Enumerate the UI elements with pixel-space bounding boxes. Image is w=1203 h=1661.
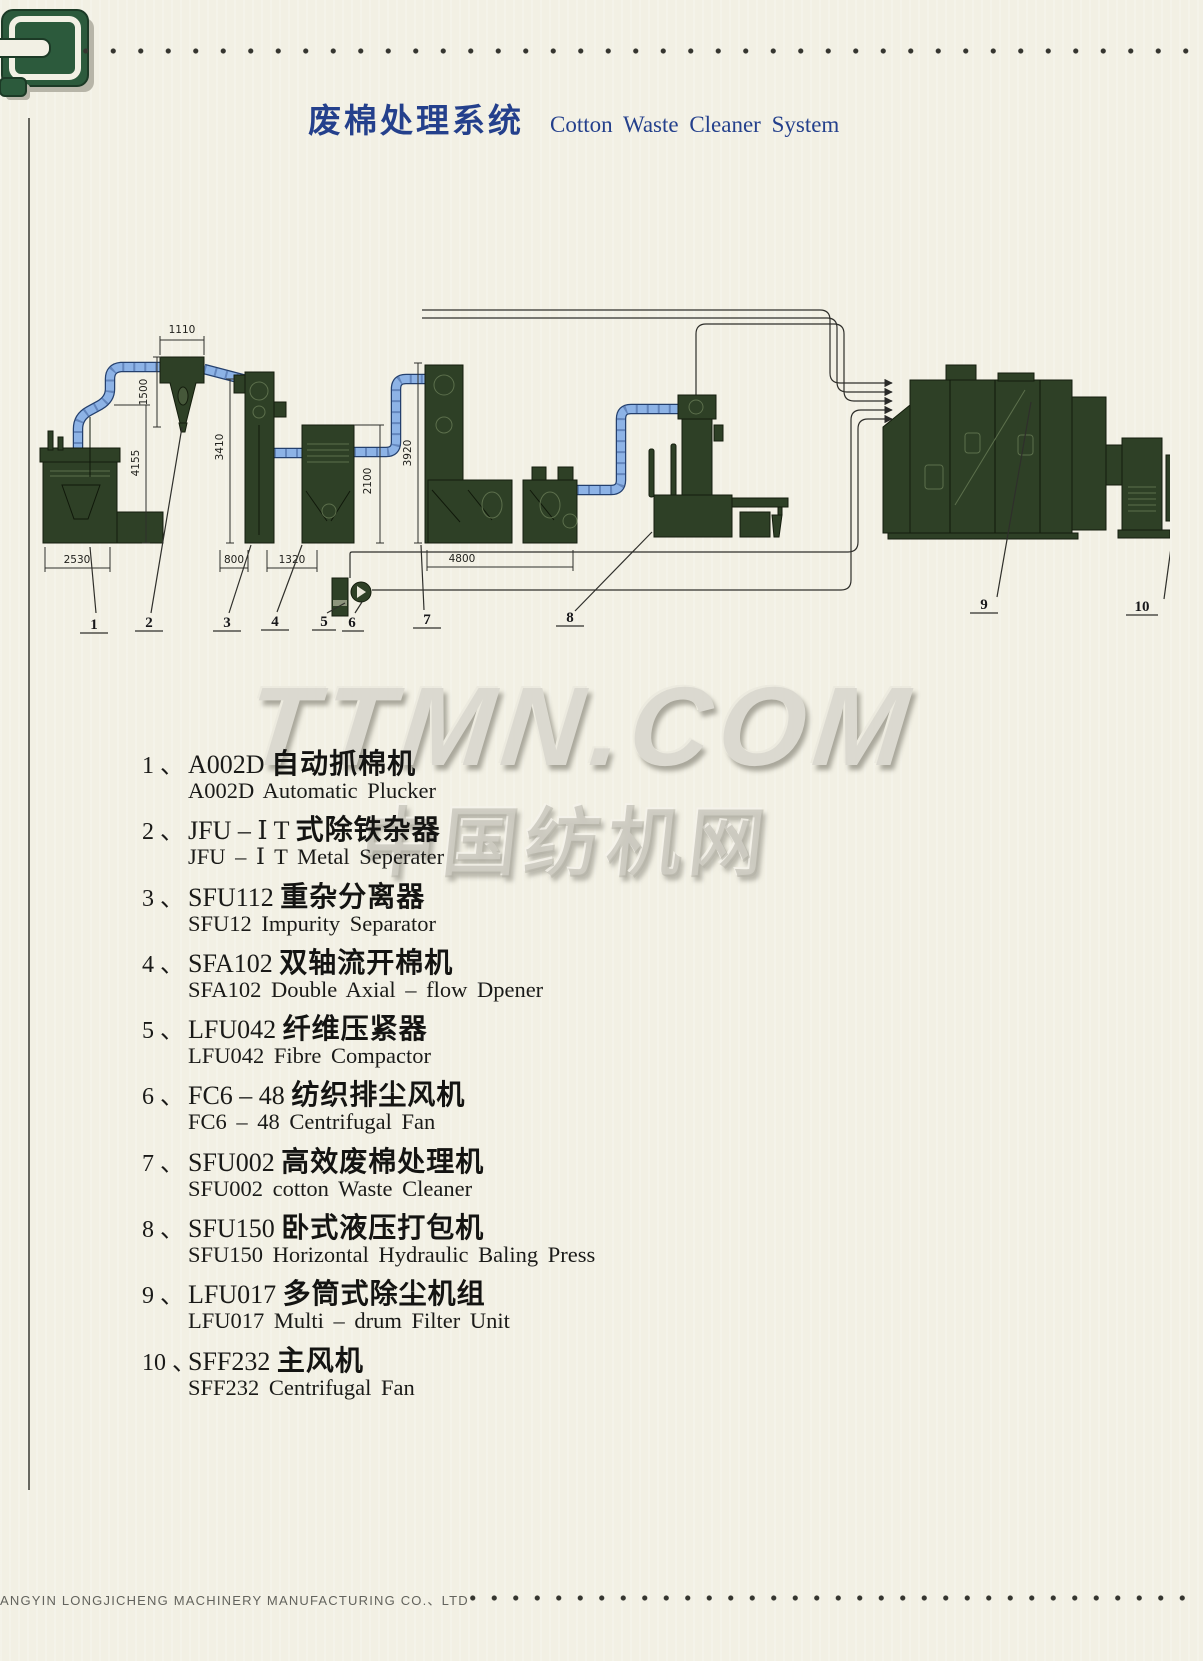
equipment-model-code: SFU112 xyxy=(188,883,280,912)
equipment-model-code: LFU017 xyxy=(188,1280,283,1309)
equipment-number: 7 、 xyxy=(142,1143,188,1178)
equipment-number: 10 、 xyxy=(142,1342,188,1377)
equipment-name-zh: 卧式液压打包机 xyxy=(281,1212,484,1243)
equipment-zh-line: 2 、JFU – Ⅰ T 式除铁杂器 xyxy=(142,808,782,842)
dim-2530: 2530 xyxy=(64,554,91,566)
callout-1: 1 xyxy=(90,617,98,633)
callout-10: 10 xyxy=(1135,599,1150,615)
equipment-name-zh: 纺织排尘风机 xyxy=(291,1079,465,1110)
equipment-name-zh: 多筒式除尘机组 xyxy=(283,1278,486,1309)
equipment-number: 2 、 xyxy=(142,811,188,846)
equipment-list-item: 3 、SFU112 重杂分离器 SFU12 Impurity Separator xyxy=(142,875,782,941)
equipment-list-item: 10 、SFF232 主风机 SFF232 Centrifugal Fan xyxy=(142,1339,782,1405)
equipment-number: 8 、 xyxy=(142,1209,188,1244)
page-title: 废棉处理系统Cotton Waste Cleaner System xyxy=(308,94,839,142)
callout-numbers: 1 2 3 4 5 6 7 8 9 10 xyxy=(80,597,1158,633)
equipment-zh-line: 4 、SFA102 双轴流开棉机 xyxy=(142,941,782,975)
equipment-name-zh: 双轴流开棉机 xyxy=(279,947,453,978)
equipment-zh-line: 1 、A002D 自动抓棉机 xyxy=(142,742,782,776)
equipment-model-code: FC6 – 48 xyxy=(188,1081,291,1110)
equipment-name-en: LFU017 Multi – drum Filter Unit xyxy=(142,1308,782,1334)
system-layout-diagram: 1110 1500 4155 3410 2100 3920 2530 800 1… xyxy=(30,295,1170,645)
dim-800: 800 xyxy=(224,554,244,566)
equipment-number: 6 、 xyxy=(142,1076,188,1111)
dim-1110: 1110 xyxy=(169,324,196,336)
diagram-canvas: 1110 1500 4155 3410 2100 3920 2530 800 1… xyxy=(30,295,1170,645)
equipment-name-en: SFA102 Double Axial – flow Dpener xyxy=(142,977,782,1003)
equipment-name-en: SFU002 cotton Waste Cleaner xyxy=(142,1176,782,1202)
equipment-name-zh: 主风机 xyxy=(277,1345,364,1376)
equipment-name-en: JFU – Ⅰ T Metal Seperater xyxy=(142,844,782,870)
callout-9: 9 xyxy=(980,597,988,613)
callout-2: 2 xyxy=(145,615,153,631)
equipment-name-en: A002D Automatic Plucker xyxy=(142,778,782,804)
equipment-name-zh: 高效废棉处理机 xyxy=(281,1146,484,1177)
machine-7-waste-cleaner xyxy=(425,365,577,543)
dim-3920: 3920 xyxy=(402,440,414,467)
machine-4-opener xyxy=(302,425,354,543)
dim-1320: 1320 xyxy=(279,554,306,566)
equipment-model-code: SFF232 xyxy=(188,1347,277,1376)
equipment-zh-line: 7 、SFU002 高效废棉处理机 xyxy=(142,1140,782,1174)
dim-1500: 1500 xyxy=(138,379,150,406)
company-name-footer: ANGYIN LONGJICHENG MACHINERY MANUFACTURI… xyxy=(0,1590,469,1609)
machine-8-baling-press xyxy=(649,395,788,537)
equipment-name-en: SFF232 Centrifugal Fan xyxy=(142,1375,782,1401)
equipment-name-zh: 纤维压紧器 xyxy=(283,1013,428,1044)
equipment-name-zh: 自动抓棉机 xyxy=(271,748,416,779)
equipment-list: 1 、A002D 自动抓棉机 A002D Automatic Plucker 2… xyxy=(142,742,782,1405)
machine-10-main-fan xyxy=(1106,438,1170,538)
equipment-name-zh: 重杂分离器 xyxy=(280,881,425,912)
equipment-model-code: JFU – Ⅰ T xyxy=(188,816,296,845)
catalog-page: 废棉处理系统Cotton Waste Cleaner System xyxy=(0,0,1203,1661)
bottom-dotted-rule xyxy=(462,1594,1192,1602)
equipment-zh-line: 9 、LFU017 多筒式除尘机组 xyxy=(142,1272,782,1306)
equipment-number: 4 、 xyxy=(142,944,188,979)
machine-2-metal-separator xyxy=(160,357,204,432)
equipment-list-item: 6 、FC6 – 48 纺织排尘风机 FC6 – 48 Centrifugal … xyxy=(142,1073,782,1139)
machine-1-plucker xyxy=(40,417,163,543)
callout-3: 3 xyxy=(223,615,231,631)
equipment-name-en: FC6 – 48 Centrifugal Fan xyxy=(142,1109,782,1135)
equipment-list-item: 4 、SFA102 双轴流开棉机 SFA102 Double Axial – f… xyxy=(142,941,782,1007)
equipment-list-item: 9 、LFU017 多筒式除尘机组 LFU017 Multi – drum Fi… xyxy=(142,1272,782,1338)
equipment-model-code: SFU150 xyxy=(188,1214,281,1243)
top-dotted-rule xyxy=(72,47,1190,55)
equipment-name-en: SFU12 Impurity Separator xyxy=(142,911,782,937)
callout-6: 6 xyxy=(348,615,356,631)
callout-5: 5 xyxy=(320,614,328,630)
equipment-list-item: 1 、A002D 自动抓棉机 A002D Automatic Plucker xyxy=(142,742,782,808)
equipment-zh-line: 5 、LFU042 纤维压紧器 xyxy=(142,1007,782,1041)
equipment-name-en: LFU042 Fibre Compactor xyxy=(142,1043,782,1069)
equipment-number: 1 、 xyxy=(142,745,188,780)
dim-4155: 4155 xyxy=(130,450,142,477)
dim-4800: 4800 xyxy=(449,553,476,565)
equipment-name-en: SFU150 Horizontal Hydraulic Baling Press xyxy=(142,1242,782,1268)
equipment-zh-line: 10 、SFF232 主风机 xyxy=(142,1339,782,1373)
equipment-list-item: 5 、LFU042 纤维压紧器 LFU042 Fibre Compactor xyxy=(142,1007,782,1073)
equipment-name-zh: 式除铁杂器 xyxy=(296,814,441,845)
equipment-list-item: 8 、SFU150 卧式液压打包机 SFU150 Horizontal Hydr… xyxy=(142,1206,782,1272)
dim-2100: 2100 xyxy=(362,468,374,495)
callout-7: 7 xyxy=(423,612,431,628)
equipment-zh-line: 6 、FC6 – 48 纺织排尘风机 xyxy=(142,1073,782,1107)
equipment-list-item: 7 、SFU002 高效废棉处理机 SFU002 cotton Waste Cl… xyxy=(142,1140,782,1206)
machine-6-fan xyxy=(351,582,371,602)
dim-3410: 3410 xyxy=(214,434,226,461)
equipment-number: 3 、 xyxy=(142,878,188,913)
equipment-zh-line: 8 、SFU150 卧式液压打包机 xyxy=(142,1206,782,1240)
equipment-zh-line: 3 、SFU112 重杂分离器 xyxy=(142,875,782,909)
page-title-en: Cotton Waste Cleaner System xyxy=(550,112,839,137)
machine-5-compactor xyxy=(332,578,348,616)
equipment-model-code: A002D xyxy=(188,750,271,779)
equipment-model-code: LFU042 xyxy=(188,1015,283,1044)
equipment-number: 5 、 xyxy=(142,1010,188,1045)
callout-8: 8 xyxy=(566,610,574,626)
callout-4: 4 xyxy=(271,614,279,630)
equipment-list-item: 2 、JFU – Ⅰ T 式除铁杂器 JFU – Ⅰ T Metal Seper… xyxy=(142,808,782,874)
machine-9-filter-unit xyxy=(883,365,1106,539)
page-title-zh: 废棉处理系统 xyxy=(308,102,524,139)
equipment-number: 9 、 xyxy=(142,1275,188,1310)
equipment-model-code: SFU002 xyxy=(188,1148,281,1177)
equipment-model-code: SFA102 xyxy=(188,949,279,978)
